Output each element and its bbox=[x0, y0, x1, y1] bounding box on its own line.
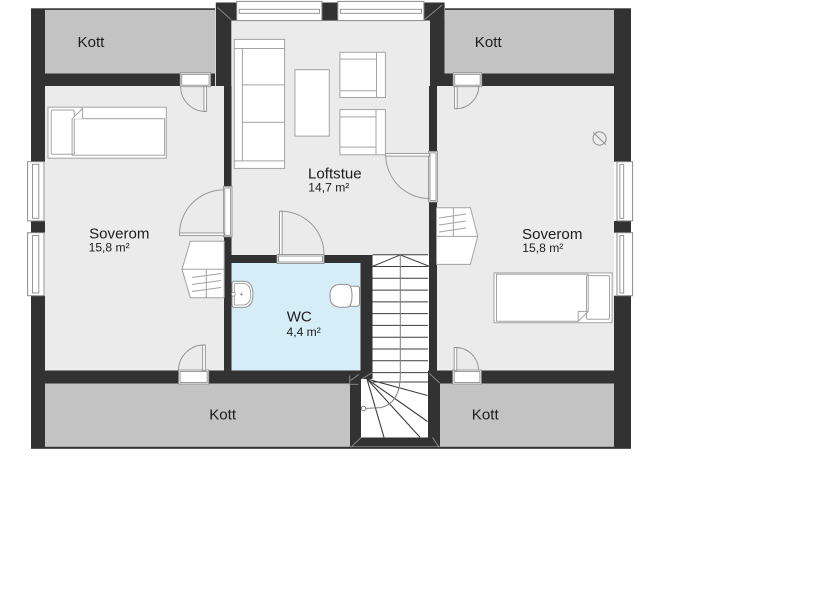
svg-text:Kott: Kott bbox=[472, 407, 500, 424]
svg-text:14,7 m²: 14,7 m² bbox=[308, 180, 349, 194]
svg-text:15,8 m²: 15,8 m² bbox=[89, 241, 130, 255]
svg-text:15,8 m²: 15,8 m² bbox=[522, 241, 563, 255]
svg-text:WC: WC bbox=[287, 308, 312, 325]
svg-text:Kott: Kott bbox=[209, 407, 237, 424]
svg-text:4,4 m²: 4,4 m² bbox=[287, 325, 321, 339]
svg-text:Kott: Kott bbox=[78, 34, 106, 51]
svg-text:Kott: Kott bbox=[475, 34, 503, 51]
